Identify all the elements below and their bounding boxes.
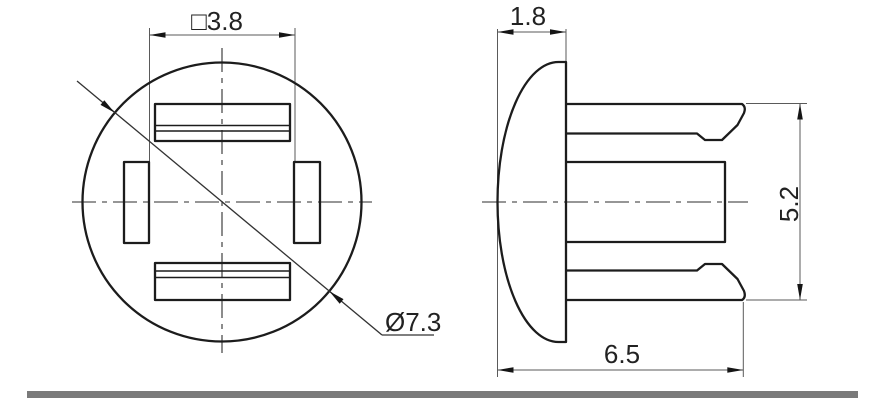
arrow-grip-bottom-icon [797, 284, 803, 300]
length-label: 6.5 [604, 339, 640, 369]
technical-drawing-page: □3.8 Ø7.3 1.8 [0, 0, 869, 405]
upper-arm-outline [566, 104, 745, 140]
arrow-grip-top-icon [797, 104, 803, 120]
cap-thickness-label: 1.8 [510, 1, 546, 31]
diameter-label: Ø7.3 [385, 307, 441, 337]
technical-drawing: □3.8 Ø7.3 1.8 [0, 0, 869, 405]
arrow-cap-right-icon [550, 29, 566, 35]
bottom-divider [27, 391, 858, 398]
grip-height-label: 5.2 [774, 186, 804, 222]
side-view: 1.8 5.2 6.5 [482, 1, 807, 377]
arrow-length-right-icon [727, 367, 743, 373]
square-dim-label: □3.8 [191, 6, 243, 36]
arrow-length-left-icon [498, 367, 514, 373]
arrow-left-icon [150, 32, 166, 38]
front-view: □3.8 Ø7.3 [72, 6, 441, 353]
lower-arm-outline [566, 264, 745, 300]
arrow-right-icon [279, 32, 295, 38]
